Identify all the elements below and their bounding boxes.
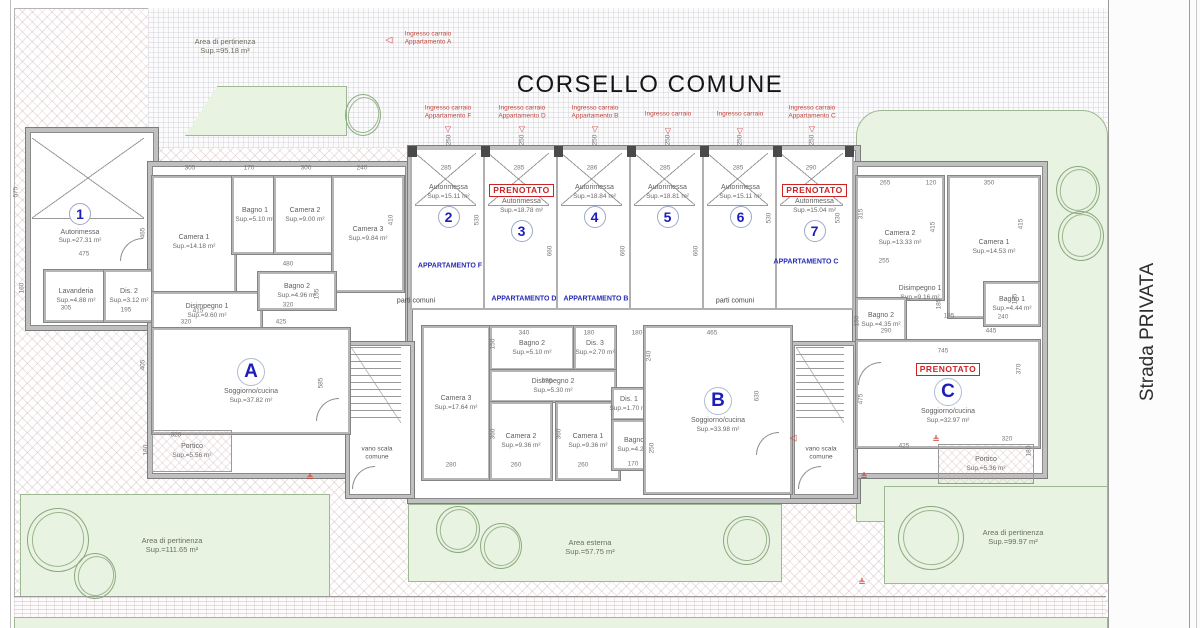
entrance-line1: Ingresso carraio (405, 31, 452, 39)
room-name: Soggiorno/cucina (691, 417, 745, 425)
room-area: Sup.=32.97 m² (927, 417, 970, 425)
garage1-number: 1 (69, 199, 91, 225)
entrance-line2: Appartamento C (788, 112, 835, 120)
road-label: Strada PRIVATA (1137, 263, 1159, 401)
dimension-label: 410 (388, 215, 395, 226)
entrance-line1: Ingresso carraio (425, 105, 472, 113)
entrance-fan-icon: ▽ (737, 127, 743, 136)
room-b-dis3: Dis. 3Sup.=2.70 m² (574, 326, 616, 370)
room-area: Sup.=14.53 m² (973, 248, 1016, 256)
room-area: Sup.=1.70 m² (609, 405, 648, 413)
dimension-label: 585 (318, 378, 325, 389)
area-top-left-label: Area di pertinenzaSup.=95.18 m² (195, 37, 256, 55)
tree-icon (723, 516, 770, 565)
apartment-wing-label: APPARTAMENTO F (418, 263, 482, 270)
page-title: CORSELLO COMUNE (517, 71, 784, 99)
room-label-b-dis3: Dis. 3Sup.=2.70 m² (575, 340, 614, 357)
reserved-badge: PRENOTATO (916, 363, 980, 376)
garage-4: AutorimessaSup.=18.84 m²4 (556, 150, 633, 310)
room-lavanderia: LavanderiaSup.=4.88 m² (44, 270, 108, 322)
dimension-label: 480 (283, 261, 294, 268)
room-label-b-camera1: Camera 1Sup.=9.36 m² (568, 433, 607, 450)
entrance-line2: Appartamento A (405, 38, 452, 46)
room-name: Dis. 2 (120, 288, 138, 296)
pillar-icon (773, 146, 782, 157)
apartment-letter-B: B (704, 387, 732, 415)
dimension-label: 405 (140, 360, 147, 371)
dimension-label: 240 (646, 351, 653, 362)
dimension-label: 305 (185, 165, 196, 172)
room-label-lavanderia: LavanderiaSup.=4.88 m² (56, 288, 95, 305)
garage-7: PRENOTATOAutorimessaSup.=15.04 m²7 (775, 150, 854, 310)
room-a-bagno1: Bagno 1Sup.=5.10 m² (232, 176, 278, 254)
apartment-letter-A: A (237, 358, 265, 386)
dimension-label: 745 (938, 348, 949, 355)
entrance-label-7: Ingresso carraioAppartamento C (788, 105, 835, 120)
dimension-label: 185 (1012, 294, 1019, 305)
room-name: Camera 3 (441, 395, 472, 403)
garage-number: 5 (657, 206, 679, 228)
dimension-label: 195 (944, 313, 955, 320)
room-name: Disimpegno 2 (532, 378, 575, 386)
pillar-icon (627, 146, 636, 157)
dimension-label: 320 (283, 302, 294, 309)
dimension-label: 575 (13, 187, 20, 198)
room-area: Sup.=14.18 m² (173, 243, 216, 251)
room-label-a-soggiorno: ASoggiorno/cucinaSup.=37.82 m² (224, 357, 278, 405)
garage-area: Sup.=18.84 m² (573, 193, 616, 201)
garage-area: Sup.=18.78 m² (500, 207, 543, 215)
room-area: Sup.=2.70 m² (575, 349, 614, 357)
room-label-c-camera1: Camera 1Sup.=14.53 m² (973, 239, 1016, 256)
garage-name: Autorimessa (575, 184, 614, 192)
room-a-camera3: Camera 3Sup.=9.84 m² (332, 176, 404, 292)
dimension-label: 250 (649, 443, 656, 454)
room-label-b-bagno2: Bagno 2Sup.=5.10 m² (512, 340, 551, 357)
dimension-label: 630 (754, 391, 761, 402)
room-name: Lavanderia (59, 288, 94, 296)
room-label-c-portico: PorticoSup.=5.36 m² (966, 456, 1005, 473)
room-b-soggiorno: BSoggiorno/cucinaSup.=33.98 m² (644, 326, 792, 494)
road-edge-line3 (1196, 0, 1197, 628)
stairwell-left-label: vano scalacomune (361, 446, 392, 461)
dimension-label: 465 (707, 330, 718, 337)
garage-label-3: PRENOTATOAutorimessaSup.=18.78 m²3 (485, 184, 558, 242)
garage-name: Autorimessa (648, 184, 687, 192)
room-label-c-camera2: Camera 2Sup.=13.33 m² (879, 230, 922, 247)
garage-name: Autorimessa (429, 184, 468, 192)
dimension-label: 445 (986, 328, 997, 335)
room-label-c-soggiorno: PRENOTATOCSoggiorno/cucinaSup.=32.97 m² (916, 363, 980, 425)
apartment-wing-label: APPARTAMENTO D (492, 296, 557, 303)
reserved-badge: PRENOTATO (782, 184, 846, 197)
dimension-label: 660 (547, 246, 554, 257)
room-label-b-dis1: Dis. 1Sup.=1.70 m² (609, 396, 648, 413)
room-label-c-bagno2: Bagno 2Sup.=4.35 m² (861, 312, 900, 329)
dimension-label: 250 (446, 135, 453, 146)
room-area: Sup.=37.82 m² (230, 397, 273, 405)
garage1-label: Autorimessa Sup.=27.31 m² (59, 229, 102, 245)
dimension-label: 320 (1002, 436, 1013, 443)
tree-icon (1056, 166, 1100, 214)
room-area: Sup.=3.12 m² (109, 297, 148, 305)
room-name: Portico (975, 456, 997, 464)
garage-6: AutorimessaSup.=15.11 m²6 (702, 150, 779, 310)
room-b-bagno2: Bagno 2Sup.=5.10 m² (490, 326, 574, 370)
dimension-label: 250 (519, 135, 526, 146)
dimension-label: 530 (542, 378, 553, 385)
dimension-label: 285 (514, 165, 525, 172)
room-area: Sup.=9.16 m² (900, 294, 939, 302)
room-name: Camera 3 (353, 226, 384, 234)
room-area: Sup.=4.96 m² (277, 292, 316, 300)
room-label-b-disimpegno2: Disimpegno 2Sup.=5.30 m² (532, 378, 575, 395)
stairwell-right: vano scalacomune (791, 342, 857, 498)
dimension-label: 340 (519, 330, 530, 337)
dimension-label: 195 (121, 307, 132, 314)
stairwell-right-label: vano scalacomune (805, 446, 836, 461)
room-b-camera3: Camera 3Sup.=17.64 m² (422, 326, 490, 480)
dimension-label: 170 (244, 165, 255, 172)
road-edge-line (1108, 0, 1109, 628)
dimension-label: 290 (806, 165, 817, 172)
dimension-label: 360 (556, 429, 563, 440)
room-name: Portico (181, 443, 203, 451)
staircase-icon (351, 347, 401, 423)
room-name: Camera 1 (979, 239, 1010, 247)
garage-number: 4 (584, 206, 606, 228)
dimension-label: 255 (879, 258, 890, 265)
entrance-label-5: Ingresso carraio (645, 110, 692, 118)
room-name: Camera 1 (179, 234, 210, 242)
room-name: Camera 2 (506, 433, 537, 441)
dimension-label: 290 (881, 328, 892, 335)
dimension-label: 286 (587, 165, 598, 172)
entrance-fan-icon: ▽ (519, 125, 525, 134)
entrance-line2: Appartamento D (498, 112, 545, 120)
room-a-portico: PorticoSup.=5.56 m² (152, 430, 232, 472)
dimension-label: 465 (140, 228, 147, 239)
room-dis2-sx: Dis. 2Sup.=3.12 m² (104, 270, 154, 322)
entrance-fan-icon: ▽ (445, 125, 451, 134)
dimension-label: 250 (592, 135, 599, 146)
room-a-disimpegno1: Disimpegno 1Sup.=9.60 m² (152, 292, 262, 330)
tree-icon (480, 523, 522, 569)
dimension-label: 285 (733, 165, 744, 172)
dimension-label: 240 (998, 314, 1009, 321)
room-name: Camera 2 (885, 230, 916, 238)
room-c-portico: PorticoSup.=5.36 m² (938, 444, 1034, 484)
tree-icon (436, 506, 480, 553)
room-label-a-bagno2: Bagno 2Sup.=4.96 m² (277, 283, 316, 300)
room-area: Sup.=4.44 m² (992, 305, 1031, 313)
dimension-label: 425 (276, 319, 287, 326)
dimension-label: 170 (628, 461, 639, 468)
room-b-disimpegno2: Disimpegno 2Sup.=5.30 m² (490, 370, 616, 402)
garage-name: Autorimessa (502, 198, 541, 206)
room-name: Soggiorno/cucina (224, 388, 278, 396)
room-c-soggiorno: PRENOTATOCSoggiorno/cucinaSup.=32.97 m² (856, 340, 1040, 448)
room-area: Sup.=5.36 m² (966, 465, 1005, 473)
room-label-a-camera2: Camera 2Sup.=9.00 m² (285, 207, 324, 224)
dimension-label: 425 (899, 443, 910, 450)
staircase-icon (796, 347, 844, 423)
room-area: Sup.=33.98 m² (697, 426, 740, 434)
room-name: Camera 2 (290, 207, 321, 215)
tree-icon (74, 553, 116, 599)
pillar-icon (845, 146, 854, 157)
dimension-label: 240 (357, 165, 368, 172)
dimension-label: 415 (930, 222, 937, 233)
dimension-label: 475 (79, 251, 90, 258)
garage-name: Autorimessa (721, 184, 760, 192)
dimension-label: 180 (584, 330, 595, 337)
apartment-wing-label: APPARTAMENTO B (564, 296, 629, 303)
entrance-line1: Ingresso carraio (645, 110, 692, 118)
tree-icon (898, 506, 964, 570)
entrance-label-3: Ingresso carraioAppartamento D (498, 105, 545, 120)
dimension-label: 280 (446, 462, 457, 469)
room-area: Sup.=5.10 m² (235, 216, 274, 224)
entrance-line1: Ingresso carraio (498, 105, 545, 113)
dimension-label: 150 (490, 339, 497, 350)
apartment-wing-label: APPARTAMENTO C (774, 259, 839, 266)
dimension-label: 475 (858, 394, 865, 405)
garage-number: 2 (438, 206, 460, 228)
dimension-label: 530 (835, 213, 842, 224)
dimension-label: 320 (171, 432, 182, 439)
entrance-label-6: Ingresso carraio (717, 110, 764, 118)
dimension-label: 150 (854, 316, 861, 327)
room-c-bagno2: Bagno 2Sup.=4.35 m² (856, 298, 906, 342)
dimension-label: 305 (61, 305, 72, 312)
walkway-strip (14, 596, 1106, 618)
dimension-label: 415 (1018, 219, 1025, 230)
dimension-label: 415 (193, 308, 204, 315)
tree-icon (345, 94, 381, 136)
room-name: Bagno 2 (519, 340, 545, 348)
dimension-label: 360 (490, 429, 497, 440)
left-border-line (10, 0, 11, 628)
pillar-icon (554, 146, 563, 157)
room-label-a-camera1: Camera 1Sup.=14.18 m² (173, 234, 216, 251)
room-area: Sup.=9.84 m² (348, 235, 387, 243)
garage-2: AutorimessaSup.=15.11 m²2 (410, 150, 487, 310)
garage-label-5: AutorimessaSup.=18.81 m²5 (631, 184, 704, 228)
red-marker-icon: ≜ (858, 578, 866, 589)
entrance-line2: Appartamento B (572, 112, 619, 120)
entrance-label-4: Ingresso carraioAppartamento B (572, 105, 619, 120)
dimension-label: 660 (620, 246, 627, 257)
tree-icon (1058, 211, 1104, 261)
room-a-camera2: Camera 2Sup.=9.00 m² (274, 176, 336, 254)
garage-5: AutorimessaSup.=18.81 m²5 (629, 150, 706, 310)
entrance-fan-icon: ▽ (665, 127, 671, 136)
common-parts-label: parti comuni (397, 298, 435, 305)
dimension-label: 315 (858, 209, 865, 220)
red-marker-icon: ◁ (790, 433, 797, 444)
dimension-label: 350 (984, 180, 995, 187)
room-area: Sup.=5.56 m² (172, 452, 211, 460)
garden-bottom-strip (14, 617, 1108, 628)
garage-3: PRENOTATOAutorimessaSup.=18.78 m²3 (483, 150, 560, 310)
area-bottom-right-label: Area di pertinenzaSup.=99.97 m² (983, 528, 1044, 546)
dimension-label: 530 (474, 215, 481, 226)
room-name: Soggiorno/cucina (921, 408, 975, 416)
reserved-badge: PRENOTATO (489, 184, 553, 197)
apartment-letter-C: C (934, 378, 962, 406)
pillar-icon (408, 146, 417, 157)
garage-number: 3 (511, 220, 533, 242)
entrance-line1: Ingresso carraio (717, 110, 764, 118)
room-label-b-soggiorno: BSoggiorno/cucinaSup.=33.98 m² (691, 386, 745, 434)
dimension-label: 320 (181, 319, 192, 326)
garage-number: 6 (730, 206, 752, 228)
room-b-dis1: Dis. 1Sup.=1.70 m² (612, 388, 646, 420)
room-a-bagno2: Bagno 2Sup.=4.96 m² (258, 272, 336, 310)
dimension-label: 530 (766, 213, 773, 224)
common-parts-label: parti comuni (716, 298, 754, 305)
dimension-label: 180 (632, 330, 643, 337)
dimension-label: 180 (1026, 446, 1033, 457)
dimension-label: 250 (665, 135, 672, 146)
dimension-label: 180 (143, 445, 150, 456)
garage-label-4: AutorimessaSup.=18.84 m²4 (558, 184, 631, 228)
dimension-label: 155 (314, 289, 321, 300)
room-area: Sup.=17.64 m² (435, 404, 478, 412)
dimension-label: 120 (926, 180, 937, 187)
room-name: Camera 1 (573, 433, 604, 441)
area-bottom-left-label: Area di pertinenzaSup.=111.65 m² (142, 536, 203, 554)
pillar-icon (481, 146, 490, 157)
garage-area: Sup.=15.11 m² (427, 193, 469, 201)
room-name: Dis. 1 (620, 396, 638, 404)
room-name: Bagno 2 (868, 312, 894, 320)
dimension-label: 260 (578, 462, 589, 469)
dimension-label: 285 (660, 165, 671, 172)
room-area: Sup.=5.10 m² (512, 349, 551, 357)
room-a-camera1: Camera 1Sup.=14.18 m² (152, 176, 236, 308)
red-marker-icon: ◁ (386, 35, 393, 46)
room-area: Sup.=9.36 m² (568, 442, 607, 450)
dimension-label: 300 (301, 165, 312, 172)
pillar-icon (700, 146, 709, 157)
entrance-line2: Appartamento F (425, 112, 472, 120)
red-marker-icon: ≜ (860, 472, 868, 483)
room-area: Sup.=5.30 m² (533, 387, 572, 395)
area-outdoor-label: Area esternaSup.=57.75 m² (565, 538, 614, 556)
room-label-a-portico: PorticoSup.=5.56 m² (172, 443, 211, 460)
room-label-a-bagno1: Bagno 1Sup.=5.10 m² (235, 207, 274, 224)
entrance-line1: Ingresso carraio (572, 105, 619, 113)
garage-area: Sup.=18.81 m² (646, 193, 689, 201)
dimension-label: 250 (809, 135, 816, 146)
road-edge-line2 (1189, 0, 1190, 628)
dimension-label: 160 (19, 283, 26, 294)
garage-area: Sup.=15.11 m² (719, 193, 761, 201)
dimension-label: 260 (511, 462, 522, 469)
dimension-label: 185 (936, 299, 943, 310)
garage-name: Autorimessa (795, 198, 834, 206)
room-label-b-camera3: Camera 3Sup.=17.64 m² (435, 395, 478, 412)
room-name: Bagno 1 (242, 207, 268, 215)
room-label-dis2-sx: Dis. 2Sup.=3.12 m² (109, 288, 148, 305)
entrance-fan-icon: ▽ (592, 125, 598, 134)
dimension-label: 285 (441, 165, 452, 172)
dimension-label: 265 (880, 180, 891, 187)
dimension-label: 660 (693, 246, 700, 257)
room-label-a-camera3: Camera 3Sup.=9.84 m² (348, 226, 387, 243)
room-area: Sup.=13.33 m² (879, 239, 922, 247)
room-name: Disimpegno 1 (899, 285, 942, 293)
red-marker-icon: ≜ (932, 435, 940, 446)
entrance-label-2: Ingresso carraioAppartamento F (425, 105, 472, 120)
garage-area: Sup.=15.04 m² (793, 207, 836, 215)
room-name: Bagno 2 (284, 283, 310, 291)
dimension-label: 250 (737, 135, 744, 146)
entrance-fan-icon: ▽ (809, 125, 815, 134)
garage-number: 7 (804, 220, 826, 242)
red-marker-icon: ≜ (306, 473, 314, 484)
room-area: Sup.=4.88 m² (56, 297, 95, 305)
dimension-label: 370 (1016, 364, 1023, 375)
room-area: Sup.=9.36 m² (501, 442, 540, 450)
room-area: Sup.=9.00 m² (285, 216, 324, 224)
entrance-line1: Ingresso carraio (788, 105, 835, 113)
room-label-b-camera2: Camera 2Sup.=9.36 m² (501, 433, 540, 450)
entrance-label-1: Ingresso carraioAppartamento A (405, 31, 452, 46)
floor-plan: vano scalacomune vano scalacomune 1 Auto… (0, 0, 1200, 628)
room-name: Dis. 3 (586, 340, 604, 348)
